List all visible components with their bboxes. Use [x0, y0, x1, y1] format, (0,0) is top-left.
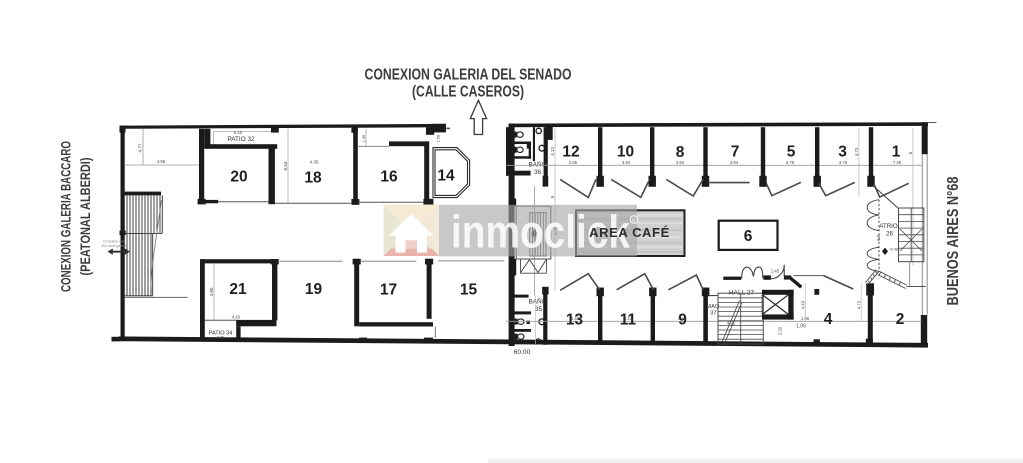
svg-text:3: 3 — [838, 144, 847, 161]
svg-text:16: 16 — [380, 169, 398, 186]
svg-text:ATRIO: ATRIO — [879, 223, 898, 230]
svg-text:4.77: 4.77 — [138, 143, 143, 152]
svg-text:Conexion con: Conexion con — [103, 240, 125, 244]
svg-text:4: 4 — [824, 311, 833, 328]
svg-text:8: 8 — [676, 144, 685, 161]
svg-text:35: 35 — [535, 306, 543, 313]
svg-text:3.76: 3.76 — [786, 160, 795, 165]
svg-text:4.43: 4.43 — [801, 300, 806, 309]
svg-text:4.73: 4.73 — [856, 300, 861, 309]
svg-text:7: 7 — [731, 144, 740, 161]
svg-text:10: 10 — [617, 144, 634, 161]
svg-text:6: 6 — [744, 228, 753, 245]
svg-text:4.73: 4.73 — [854, 147, 859, 156]
svg-text:PATIO 32: PATIO 32 — [227, 136, 255, 143]
svg-text:R: R — [632, 218, 636, 224]
svg-text:BAÑO: BAÑO — [528, 297, 546, 306]
svg-text:3.76: 3.76 — [839, 160, 848, 165]
svg-text:6.8: 6.8 — [876, 234, 881, 240]
svg-text:otro local galeria: otro local galeria — [101, 244, 127, 248]
svg-text:3.94: 3.94 — [622, 160, 631, 165]
svg-text:BAÑO: BAÑO — [528, 160, 546, 169]
svg-text:5.10: 5.10 — [234, 130, 243, 135]
svg-text:36: 36 — [534, 169, 542, 176]
svg-text:+0.48: +0.48 — [889, 248, 898, 252]
svg-text:BUENOS AIRES N°68: BUENOS AIRES N°68 — [945, 176, 962, 305]
svg-text:4.98: 4.98 — [157, 159, 166, 164]
svg-text:4.43: 4.43 — [232, 315, 241, 320]
svg-text:3.94: 3.94 — [730, 160, 739, 165]
svg-text:18: 18 — [304, 170, 322, 187]
svg-text:37: 37 — [710, 311, 716, 317]
svg-text:CONEXION GALERIA DEL SENADO: CONEXION GALERIA DEL SENADO — [365, 67, 572, 84]
svg-text:20: 20 — [230, 169, 247, 186]
svg-text:1: 1 — [892, 144, 901, 161]
svg-text:7.46: 7.46 — [893, 160, 902, 165]
svg-text:15: 15 — [460, 282, 478, 299]
svg-text:17: 17 — [380, 282, 397, 299]
svg-text:4.43: 4.43 — [624, 316, 633, 321]
svg-text:26: 26 — [886, 231, 893, 238]
svg-text:CONEXION GALERIA BACCARO: CONEXION GALERIA BACCARO — [59, 141, 74, 292]
svg-text:14: 14 — [437, 168, 455, 185]
svg-text:2.20: 2.20 — [778, 326, 783, 335]
svg-text:2.80: 2.80 — [217, 336, 224, 340]
svg-text:5: 5 — [787, 144, 796, 161]
svg-text:2: 2 — [896, 311, 905, 328]
svg-text:1.58: 1.58 — [437, 135, 441, 142]
svg-text:12: 12 — [562, 144, 579, 161]
svg-text:4.30: 4.30 — [310, 160, 319, 165]
svg-text:21: 21 — [229, 281, 247, 298]
svg-text:AREA CAFÉ: AREA CAFÉ — [589, 225, 670, 240]
svg-text:1.06: 1.06 — [796, 324, 806, 330]
svg-text:(PEATONAL ALBERDI): (PEATONAL ALBERDI) — [78, 158, 93, 276]
svg-text:4.43: 4.43 — [571, 316, 580, 321]
svg-text:4.21: 4.21 — [727, 321, 736, 326]
svg-text:4.13: 4.13 — [550, 147, 555, 156]
svg-text:1.36: 1.36 — [362, 135, 366, 142]
svg-text:60.00: 60.00 — [514, 349, 531, 356]
svg-text:4.60: 4.60 — [209, 287, 214, 296]
svg-text:1.45: 1.45 — [771, 269, 780, 274]
svg-text:4.43: 4.43 — [678, 316, 687, 321]
svg-text:2.65: 2.65 — [569, 160, 578, 165]
svg-text:19: 19 — [305, 281, 323, 298]
svg-text:(CALLE CASEROS): (CALLE CASEROS) — [412, 84, 524, 101]
svg-text:3.94: 3.94 — [676, 160, 685, 165]
svg-text:6.53: 6.53 — [283, 161, 288, 170]
